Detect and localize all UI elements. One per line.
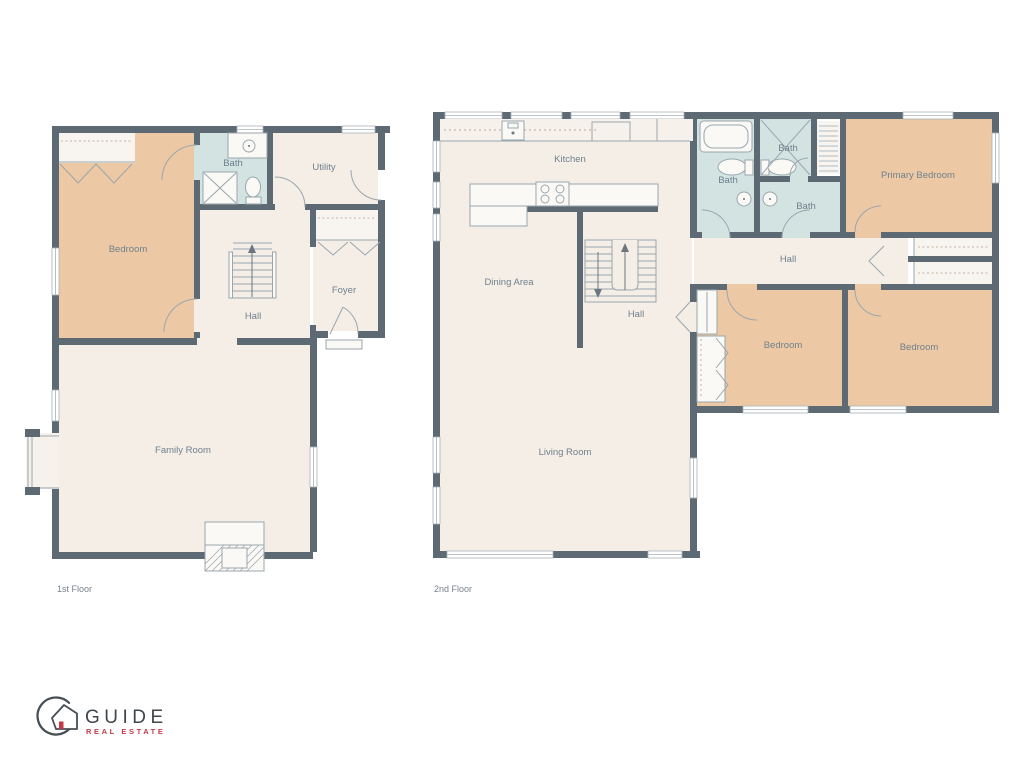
label-stair-hall-2f: Hall xyxy=(628,309,644,320)
room-bedroom-1f xyxy=(57,133,197,341)
floor-plan: Bedroom Bath Utility Hall Foyer Family R… xyxy=(0,0,1024,767)
label-kitchen-2f: Kitchen xyxy=(554,154,586,165)
label-hall-1f: Hall xyxy=(245,311,261,322)
toilet-icon xyxy=(718,159,753,175)
kitchen-counter xyxy=(440,119,693,141)
label-foyer-1f: Foyer xyxy=(332,285,356,296)
label-bedroom-1f: Bedroom xyxy=(109,244,148,255)
front-step xyxy=(326,340,362,349)
label-primary-bedroom-2f: Primary Bedroom xyxy=(881,170,955,181)
logo-door-icon xyxy=(59,722,64,730)
label-bath-shower-2f: Bath xyxy=(778,143,798,154)
label-family-room-1f: Family Room xyxy=(155,445,211,456)
second-floor: Kitchen Dining Area Hall Living Room Bat… xyxy=(433,112,999,594)
toilet-icon xyxy=(246,177,262,204)
label-hall-2f: Hall xyxy=(780,254,796,265)
floorplan-page: Bedroom Bath Utility Hall Foyer Family R… xyxy=(0,0,1024,767)
floor-label-1st: 1st Floor xyxy=(57,584,92,594)
label-utility-1f: Utility xyxy=(312,162,335,173)
label-bath-middle-2f: Bath xyxy=(796,201,816,212)
fireplace-icon xyxy=(198,522,275,571)
bay-window-icon xyxy=(25,429,59,495)
guide-logo: GUIDE REAL ESTATE xyxy=(38,697,168,736)
room-kitchen-dining-living-2f xyxy=(436,115,692,555)
first-floor: Bedroom Bath Utility Hall Foyer Family R… xyxy=(25,126,390,594)
floor-label-2nd: 2nd Floor xyxy=(434,584,472,594)
kitchen-sink-icon xyxy=(502,121,524,140)
label-bath-left-2f: Bath xyxy=(718,175,738,186)
label-bedroom-right-2f: Bedroom xyxy=(900,342,939,353)
logo-mark-icon xyxy=(38,697,77,734)
label-bedroom-left-2f: Bedroom xyxy=(764,340,803,351)
label-bath-1f: Bath xyxy=(223,158,243,169)
room-hall-2f xyxy=(694,238,908,284)
logo-tagline: REAL ESTATE xyxy=(86,727,165,736)
label-living-room-2f: Living Room xyxy=(539,447,592,458)
label-dining-area-2f: Dining Area xyxy=(484,277,534,288)
stove-icon xyxy=(536,182,569,206)
shower-icon xyxy=(203,172,237,204)
logo-name: GUIDE xyxy=(85,707,168,728)
bathtub-icon xyxy=(700,121,752,152)
sink-icon xyxy=(228,133,267,158)
